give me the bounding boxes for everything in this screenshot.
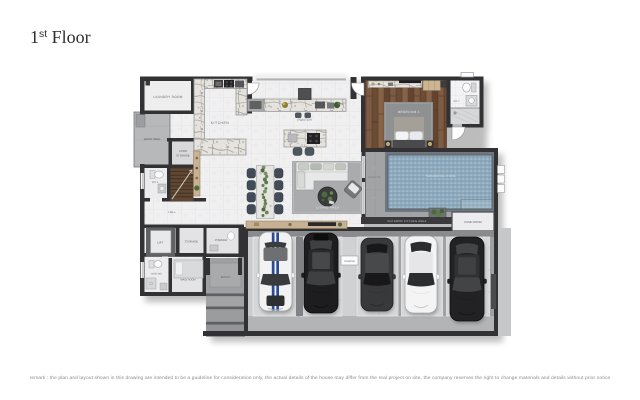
svg-text:MAID WC: MAID WC bbox=[151, 273, 162, 276]
svg-text:BEDROOM 1: BEDROOM 1 bbox=[398, 110, 420, 114]
svg-text:PANTRY: PANTRY bbox=[297, 118, 313, 122]
svg-text:LIVING AREA: LIVING AREA bbox=[316, 206, 339, 210]
svg-text:LAUNDRY ROOM: LAUNDRY ROOM bbox=[153, 95, 183, 99]
svg-text:PUMP ROOM: PUMP ROOM bbox=[464, 220, 482, 224]
svg-text:KITCHEN: KITCHEN bbox=[211, 121, 229, 125]
svg-text:WASH YARD: WASH YARD bbox=[144, 137, 161, 141]
svg-text:WC 1: WC 1 bbox=[152, 181, 159, 184]
svg-text:STORAGE: STORAGE bbox=[185, 240, 199, 244]
svg-text:TERRACE: TERRACE bbox=[367, 175, 380, 179]
svg-text:PARKING: PARKING bbox=[344, 260, 355, 263]
svg-text:FOOD: FOOD bbox=[179, 149, 187, 153]
svg-text:POWDER: POWDER bbox=[215, 238, 228, 242]
svg-text:ENTRY: ENTRY bbox=[221, 275, 231, 279]
svg-text:WC 2: WC 2 bbox=[453, 100, 460, 103]
svg-text:MAID ROOM: MAID ROOM bbox=[180, 279, 195, 282]
svg-text:OUTDOOR KITCHEN AREA: OUTDOOR KITCHEN AREA bbox=[387, 220, 426, 223]
svg-text:STORAGE: STORAGE bbox=[176, 154, 190, 158]
svg-text:SWIMMING POOL: SWIMMING POOL bbox=[425, 174, 456, 178]
svg-text:LIFT: LIFT bbox=[157, 241, 163, 245]
svg-text:HALL: HALL bbox=[169, 210, 176, 214]
